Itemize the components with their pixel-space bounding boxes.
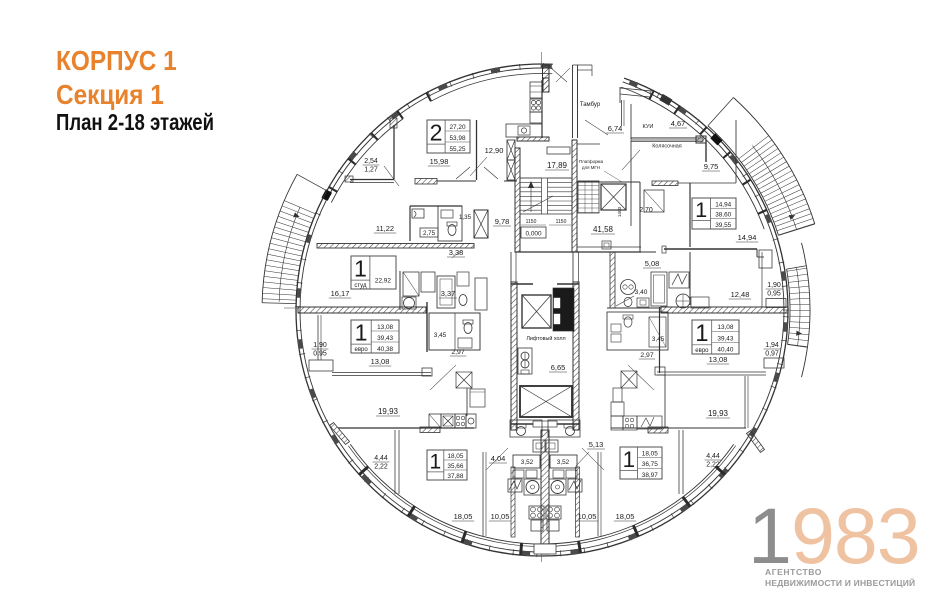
svg-text:18,05: 18,05 (616, 512, 635, 521)
svg-text:4,44: 4,44 (706, 453, 720, 460)
svg-text:2,22: 2,22 (706, 462, 720, 469)
svg-text:12,90: 12,90 (485, 146, 504, 155)
svg-text:2: 2 (430, 120, 443, 146)
svg-text:1: 1 (355, 320, 368, 346)
svg-text:38,97: 38,97 (642, 472, 658, 479)
svg-text:53,98: 53,98 (450, 135, 466, 142)
svg-text:1,90: 1,90 (767, 282, 781, 289)
svg-text:39,55: 39,55 (715, 222, 731, 229)
svg-text:1400: 1400 (617, 206, 622, 217)
svg-text:для МГН: для МГН (582, 165, 600, 170)
svg-text:3,37: 3,37 (441, 289, 456, 298)
svg-text:3,45: 3,45 (434, 332, 447, 339)
svg-text:10,05: 10,05 (491, 512, 510, 521)
svg-text:4,04: 4,04 (491, 454, 506, 463)
svg-text:Платформа: Платформа (579, 159, 604, 164)
svg-text:0,000: 0,000 (526, 231, 542, 238)
svg-text:27,20: 27,20 (450, 124, 466, 131)
svg-text:18,05: 18,05 (447, 453, 463, 460)
svg-text:17,89: 17,89 (547, 161, 568, 170)
svg-text:5,13: 5,13 (589, 440, 604, 449)
svg-text:0,97: 0,97 (765, 351, 779, 358)
svg-text:18,05: 18,05 (642, 451, 658, 458)
svg-text:13,08: 13,08 (377, 324, 393, 331)
svg-text:9,78: 9,78 (495, 217, 510, 226)
svg-text:1: 1 (430, 451, 442, 474)
svg-text:1150: 1150 (556, 219, 567, 225)
svg-text:9,75: 9,75 (704, 162, 719, 171)
svg-text:1150: 1150 (526, 219, 537, 225)
svg-text:1,94: 1,94 (765, 342, 779, 349)
svg-text:15,98: 15,98 (430, 157, 449, 166)
svg-text:38,60: 38,60 (715, 212, 731, 219)
svg-text:40,38: 40,38 (377, 346, 393, 353)
svg-text:1,35: 1,35 (459, 214, 472, 221)
svg-text:41,58: 41,58 (593, 225, 614, 234)
svg-text:36,75: 36,75 (642, 461, 658, 468)
svg-text:1: 1 (623, 447, 635, 472)
svg-text:6,65: 6,65 (551, 363, 566, 372)
svg-text:6,74: 6,74 (608, 124, 623, 133)
svg-text:4,44: 4,44 (374, 455, 388, 462)
svg-text:39,43: 39,43 (717, 335, 733, 342)
svg-text:19,93: 19,93 (708, 409, 729, 418)
svg-text:40,40: 40,40 (717, 347, 733, 354)
svg-text:студ: студ (354, 283, 367, 289)
svg-text:39,43: 39,43 (377, 335, 393, 342)
svg-text:16,17: 16,17 (331, 289, 350, 298)
svg-text:13,08: 13,08 (371, 357, 390, 366)
svg-text:1,27: 1,27 (364, 167, 378, 174)
svg-text:2,97: 2,97 (451, 349, 464, 356)
svg-text:55,25: 55,25 (450, 146, 466, 153)
svg-text:13,08: 13,08 (709, 355, 728, 364)
svg-text:4,67: 4,67 (671, 119, 686, 128)
svg-text:35,66: 35,66 (447, 463, 463, 470)
svg-text:10,05: 10,05 (578, 512, 597, 521)
svg-text:1: 1 (354, 256, 367, 282)
svg-text:Тамбур: Тамбур (580, 102, 601, 108)
svg-text:3,52: 3,52 (557, 459, 570, 466)
svg-text:5,08: 5,08 (645, 259, 660, 268)
svg-text:1: 1 (695, 320, 708, 347)
svg-text:Колясочная: Колясочная (652, 144, 682, 150)
svg-text:2,97: 2,97 (640, 352, 653, 359)
svg-text:37,88: 37,88 (447, 473, 463, 480)
svg-text:22,92: 22,92 (375, 277, 391, 284)
svg-text:Лифтовый холл: Лифтовый холл (526, 335, 565, 342)
svg-text:14,94: 14,94 (738, 233, 757, 242)
svg-text:2,54: 2,54 (364, 158, 378, 165)
svg-text:18,05: 18,05 (454, 512, 473, 521)
svg-text:2,75: 2,75 (423, 230, 436, 237)
svg-text:3,52: 3,52 (521, 459, 534, 466)
svg-text:0,95: 0,95 (313, 351, 327, 358)
svg-text:3,38: 3,38 (449, 248, 464, 257)
svg-text:3,40: 3,40 (635, 289, 648, 296)
svg-text:евро: евро (695, 348, 709, 354)
svg-text:КУИ: КУИ (643, 124, 654, 130)
svg-text:12,48: 12,48 (731, 290, 750, 299)
svg-text:14,94: 14,94 (715, 201, 731, 208)
svg-text:11,22: 11,22 (376, 224, 394, 233)
svg-text:1: 1 (695, 197, 707, 222)
svg-text:2,22: 2,22 (374, 464, 388, 471)
svg-text:19,93: 19,93 (378, 407, 399, 416)
svg-text:2,70: 2,70 (639, 207, 653, 214)
svg-text:0,95: 0,95 (767, 291, 781, 298)
svg-text:евро: евро (354, 347, 368, 353)
svg-text:13,08: 13,08 (717, 324, 733, 331)
svg-text:3,45: 3,45 (652, 336, 665, 343)
svg-text:1,90: 1,90 (313, 342, 327, 349)
